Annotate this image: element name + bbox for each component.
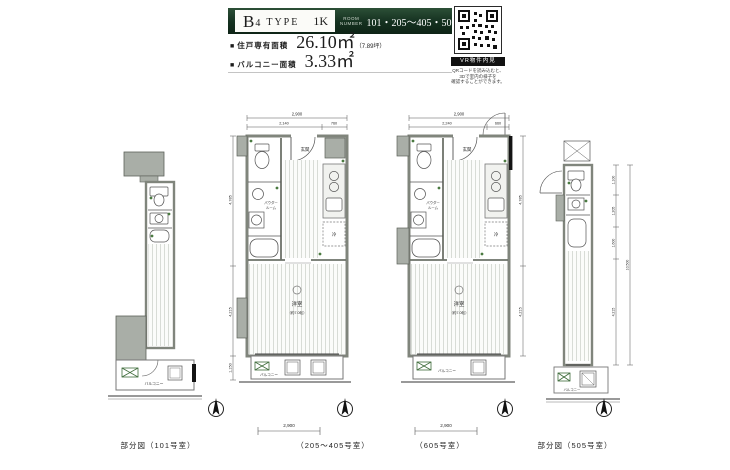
room-label: 洋室 bbox=[454, 300, 465, 308]
type-letter: B bbox=[243, 13, 254, 30]
type-banner: B 4 TYPE 1K ROOM NUMBER 101・205〜405・505・… bbox=[228, 8, 452, 34]
svg-text:パウダー: パウダー bbox=[264, 200, 278, 205]
svg-text:2,900: 2,900 bbox=[440, 423, 452, 428]
caption-plan-205-405: （205〜405号室） bbox=[268, 440, 398, 451]
svg-text:ルーム: ルーム bbox=[428, 205, 439, 210]
plan-type-box: 1K bbox=[306, 10, 335, 32]
svg-text:4,215: 4,215 bbox=[612, 308, 616, 317]
type-number: 4 bbox=[255, 18, 260, 29]
bathtub bbox=[250, 239, 278, 257]
corridor-floor bbox=[149, 244, 172, 346]
hatch-squares bbox=[580, 371, 596, 387]
exterior-door-arc-icon bbox=[540, 171, 562, 193]
room-floor bbox=[411, 264, 507, 354]
room-floor bbox=[249, 264, 345, 354]
caption-plan-505: 部分図（505号室） bbox=[515, 440, 635, 451]
corridor-floor bbox=[283, 160, 321, 258]
svg-text:2,900: 2,900 bbox=[292, 112, 303, 117]
fridge-label: 冷 bbox=[494, 231, 499, 238]
corridor-floor bbox=[445, 160, 483, 258]
svg-text:4,215: 4,215 bbox=[229, 307, 233, 317]
party-wall bbox=[509, 136, 512, 170]
exclusive-area-row: ■ 住戸専有面積 26.10㎡ （7.89坪） bbox=[230, 34, 385, 51]
wall-block bbox=[124, 152, 164, 176]
room-number-label: ROOM NUMBER bbox=[340, 16, 363, 26]
elevator-shaft bbox=[564, 141, 590, 161]
balcony-label: バルコニー bbox=[438, 369, 456, 373]
entrance-label: 玄関 bbox=[463, 146, 472, 153]
dimension-bottom-b: 2,900 bbox=[254, 420, 324, 436]
svg-text:2,900: 2,900 bbox=[283, 423, 295, 428]
balcony-area-row: ■ バルコニー面積 3.33㎡ bbox=[230, 53, 354, 70]
balcony-label: バルコニー bbox=[260, 373, 278, 377]
svg-text:1,205: 1,205 bbox=[612, 207, 616, 216]
floor-plan-205-405: 2,900 2,140 760 4,785 4,215 1,150 玄関 bbox=[225, 108, 360, 404]
floor-plan-partial-505: 1,100 1,205 1,600 4,215 10,500 バルコニー bbox=[528, 135, 643, 420]
bathtub bbox=[412, 239, 440, 257]
type-name-box: B 4 TYPE bbox=[235, 10, 306, 32]
hatch-squares bbox=[471, 360, 486, 375]
balcony-label: バルコニー bbox=[145, 381, 164, 386]
svg-text:2,240: 2,240 bbox=[442, 122, 452, 126]
svg-text:10,500: 10,500 bbox=[626, 260, 630, 271]
caption-plan-101: 部分図（101号室） bbox=[103, 440, 213, 451]
dimension-right bbox=[613, 165, 633, 365]
compass-north-icon bbox=[495, 396, 515, 422]
compass-north-icon bbox=[594, 396, 614, 422]
header-underline bbox=[228, 72, 452, 73]
floor-plan-605: 2,900 2,240 660 4,785 4,215 玄関 bbox=[395, 108, 535, 404]
corridor-floor bbox=[567, 251, 590, 361]
floor-plan-page: B 4 TYPE 1K ROOM NUMBER 101・205〜405・505・… bbox=[0, 0, 730, 470]
bullet-icon: ■ bbox=[230, 62, 234, 69]
wall-column bbox=[116, 316, 146, 360]
balcony-label: バルコニー bbox=[564, 388, 581, 392]
svg-text:4,785: 4,785 bbox=[229, 195, 233, 205]
entrance-label: 玄関 bbox=[301, 146, 310, 153]
vr-badge: VR物件内見 bbox=[451, 57, 505, 66]
qr-code-icon bbox=[458, 10, 498, 50]
svg-text:660: 660 bbox=[495, 122, 501, 126]
dimension-bottom-c: 2,900 bbox=[411, 420, 481, 436]
svg-text:パウダー: パウダー bbox=[426, 200, 440, 205]
svg-text:2,900: 2,900 bbox=[454, 112, 465, 117]
svg-text:4,785: 4,785 bbox=[519, 195, 523, 205]
compass-north-icon bbox=[335, 396, 355, 422]
vr-qr-panel: VR物件内見 QRコードを読み込むと、 3Dで室内の様子を 確認することができま… bbox=[450, 6, 506, 85]
room-label: 洋室 bbox=[292, 300, 303, 308]
dimension-left bbox=[230, 136, 236, 380]
caption-plan-605: （605号室） bbox=[390, 440, 490, 451]
svg-text:ルーム: ルーム bbox=[266, 205, 277, 210]
qr-caption: QRコードを読み込むと、 3Dで室内の様子を 確認することができます。 bbox=[450, 68, 506, 85]
bullet-icon: ■ bbox=[230, 43, 234, 50]
dimension-right bbox=[520, 136, 526, 356]
svg-text:1,600: 1,600 bbox=[612, 239, 616, 248]
room-size-label: （約7.0帖） bbox=[287, 310, 306, 315]
svg-text:4,215: 4,215 bbox=[519, 307, 523, 317]
room-size-label: （約7.0帖） bbox=[449, 310, 468, 315]
qr-code bbox=[454, 6, 502, 54]
compass-north-icon bbox=[206, 396, 226, 422]
svg-text:2,140: 2,140 bbox=[279, 122, 289, 126]
fridge-label: 冷 bbox=[332, 231, 337, 238]
floor-plan-partial-101: バルコニー bbox=[100, 140, 210, 410]
svg-text:1,150: 1,150 bbox=[229, 363, 233, 373]
svg-text:1,100: 1,100 bbox=[612, 176, 616, 185]
svg-text:760: 760 bbox=[331, 122, 337, 126]
type-word: TYPE bbox=[266, 17, 299, 28]
